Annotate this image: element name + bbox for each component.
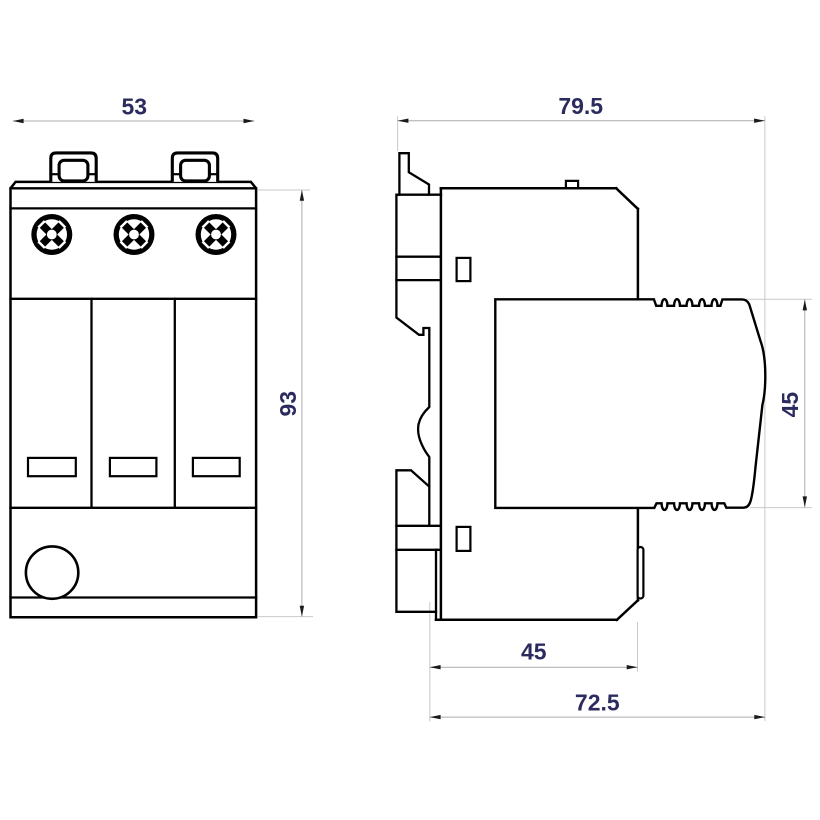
svg-text:45: 45: [777, 392, 803, 418]
svg-text:45: 45: [521, 639, 547, 665]
svg-text:72.5: 72.5: [575, 690, 620, 716]
svg-text:93: 93: [275, 391, 301, 417]
svg-text:53: 53: [122, 94, 148, 120]
svg-text:79.5: 79.5: [558, 93, 603, 119]
